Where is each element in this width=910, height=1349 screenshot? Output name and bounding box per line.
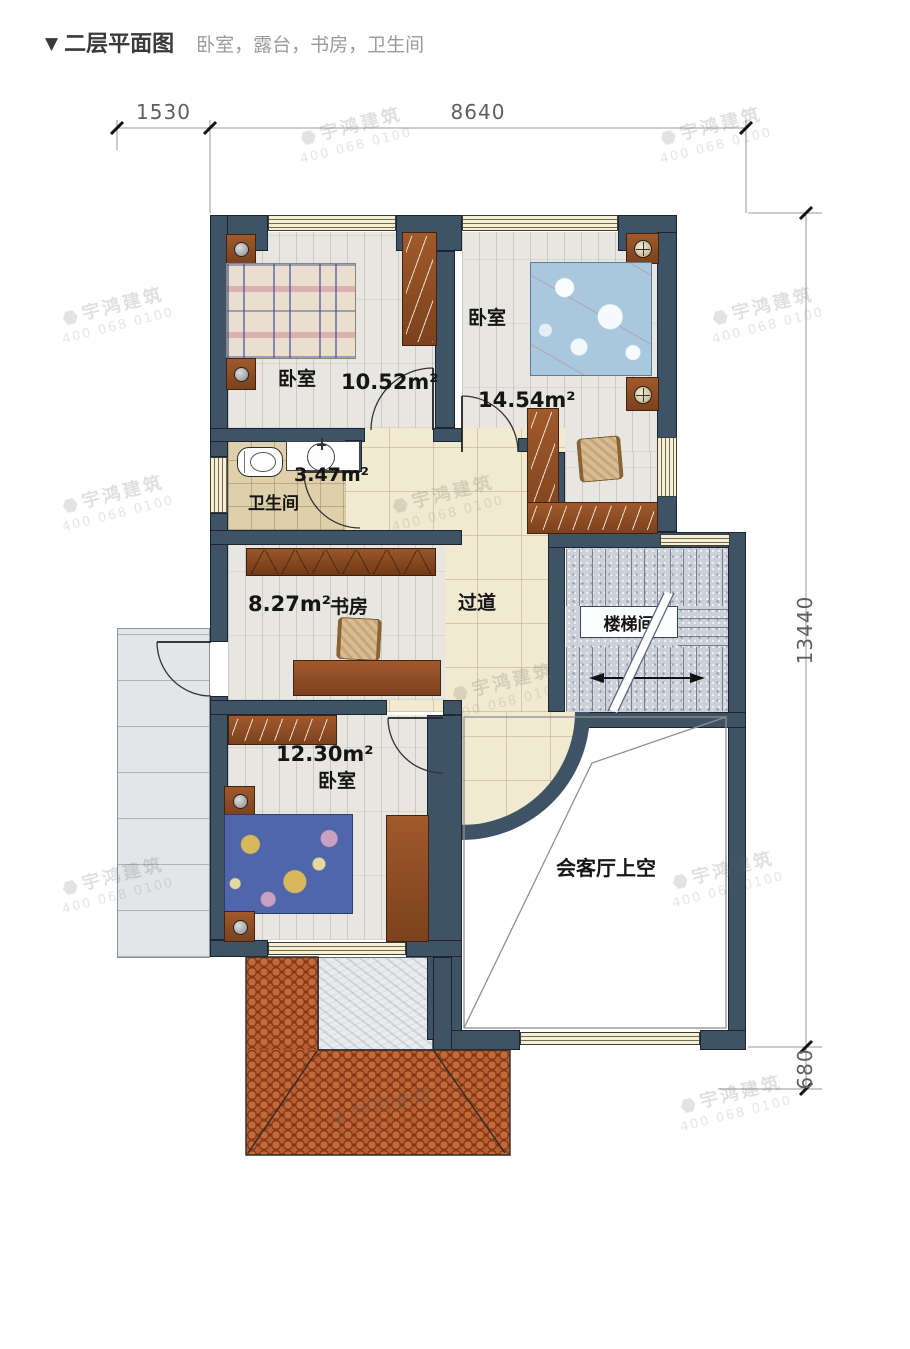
room-label-hallway: 过道: [458, 588, 496, 615]
room-label-living-void: 会客厅上空: [556, 852, 656, 881]
window: [210, 457, 228, 513]
brand-logo-icon: [61, 878, 79, 896]
dim-bottom-right: 680: [793, 1034, 817, 1104]
toilet: [237, 447, 283, 477]
brand-watermark: 宇鸿建筑400 068 0100: [27, 460, 202, 542]
wall-segment: [433, 428, 462, 442]
dim-right-total: 13440: [793, 586, 817, 674]
window: [462, 215, 618, 231]
nightstand: [226, 358, 256, 390]
porch-roof-tiles-bottom: [246, 1050, 510, 1155]
nightstand: [626, 377, 659, 411]
terrace-floor: [117, 628, 210, 958]
room-area-bedroom-top-right: 14.54m²: [478, 388, 576, 412]
page-header: ▼二层平面图卧室，露台，书房，卫生间: [45, 26, 424, 58]
room-area-bathroom: 3.47m²: [294, 464, 369, 486]
brand-watermark: 宇鸿建筑400 068 0100: [677, 272, 852, 354]
room-label-study: 书房: [330, 592, 368, 619]
wall-segment: [210, 428, 365, 442]
desk: [293, 660, 441, 696]
nightstand: [226, 234, 256, 264]
room-label-bedroom-bottom: 卧室: [318, 766, 356, 793]
bed: [530, 262, 652, 376]
nightstand: [626, 233, 659, 264]
dresser: [386, 815, 429, 942]
window: [657, 437, 677, 497]
dim-top-right: 8640: [210, 100, 746, 124]
brand-logo-icon: [711, 308, 729, 326]
chair: [336, 617, 382, 661]
wall-segment: [406, 940, 462, 957]
bookshelf: [246, 548, 436, 576]
room-label-bathroom: 卫生间: [248, 489, 299, 514]
window: [268, 942, 406, 955]
window: [520, 1032, 700, 1045]
wall-segment: [700, 1030, 746, 1050]
chair: [576, 435, 624, 483]
nightstand: [224, 911, 255, 942]
brand-logo-icon: [679, 1096, 697, 1114]
bed: [224, 814, 353, 914]
wall-segment: [210, 940, 268, 957]
balcony-marble-floor: [318, 957, 433, 1050]
wardrobe: [402, 232, 437, 346]
wall-segment: [210, 530, 462, 545]
stair-landing-steps: [678, 608, 728, 646]
stair-lower-flight: [566, 647, 728, 711]
wall-segment: [210, 700, 387, 715]
brand-logo-icon: [299, 128, 317, 146]
wall-segment: [728, 532, 746, 1047]
nightstand: [224, 786, 255, 816]
page-subtitle: 卧室，露台，书房，卫生间: [196, 34, 424, 56]
wardrobe: [228, 715, 337, 745]
stair-upper-flight: [566, 549, 728, 606]
brand-watermark: 宇鸿建筑400 068 0100: [27, 272, 202, 354]
brand-logo-icon: [659, 128, 677, 146]
desk: [527, 502, 658, 534]
wall-segment: [443, 700, 462, 715]
dim-top-left: 1530: [117, 100, 210, 124]
brand-logo-icon: [61, 308, 79, 326]
window: [660, 534, 730, 546]
room-label-stairwell: 楼梯间: [604, 610, 655, 635]
wall-segment: [445, 1030, 520, 1050]
window: [268, 215, 396, 231]
room-area-bedroom-top-left: 10.52m²: [341, 370, 439, 394]
wall-segment: [435, 251, 455, 428]
room-area-study: 8.27m²: [248, 592, 331, 616]
title-marker-icon: ▼: [45, 34, 58, 54]
stairwell-label-box: 楼梯间: [580, 606, 678, 638]
bed: [226, 263, 356, 359]
room-area-bedroom-bottom: 12.30m²: [276, 742, 374, 766]
page-title: 二层平面图: [64, 32, 174, 57]
floor-plan-page: ▼二层平面图卧室，露台，书房，卫生间: [0, 0, 910, 1349]
room-label-bedroom-top-right: 卧室: [468, 303, 506, 330]
room-label-bedroom-top-left: 卧室: [278, 364, 316, 391]
wall-segment: [433, 957, 452, 1050]
brand-logo-icon: [61, 496, 79, 514]
